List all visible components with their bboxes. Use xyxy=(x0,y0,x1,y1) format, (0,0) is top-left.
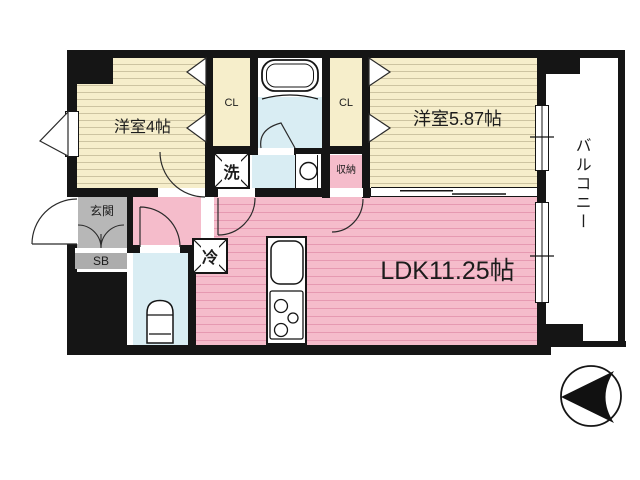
plan-annotations xyxy=(0,0,640,480)
shoe-cupboard-doors xyxy=(78,225,124,248)
toilet-fixture xyxy=(147,301,173,344)
floor-plan: 洗 冷 xyxy=(0,0,640,480)
bathtub-rim xyxy=(262,95,318,99)
balcony-label: バルコニー xyxy=(572,127,590,242)
stove-burner xyxy=(275,324,288,337)
bedroom2-label: 洋室5.87帖 xyxy=(385,110,530,130)
sliding-door-leaves xyxy=(400,191,506,194)
washbasin-bowl xyxy=(300,163,317,180)
entrance-label: 玄関 xyxy=(77,205,127,218)
storage-label: 収納 xyxy=(329,165,363,176)
kitchen-sink xyxy=(271,241,303,284)
ldk-label: LDK11.25帖 xyxy=(360,258,535,286)
bath-folding-door xyxy=(261,123,295,148)
bathtub xyxy=(262,60,318,91)
window-wedge xyxy=(40,112,68,156)
entrance-door-arc xyxy=(32,199,77,244)
closet1-door-wedge xyxy=(187,58,206,86)
stove-burner xyxy=(288,313,298,323)
bedroom1-door-arc xyxy=(160,152,205,197)
washroom-door-arc xyxy=(218,198,255,235)
toilet-door-arc xyxy=(140,207,180,247)
bedroom1-label: 洋室4帖 xyxy=(95,119,190,137)
closet2-label: CL xyxy=(330,97,362,109)
closet2-door-wedge xyxy=(369,58,390,86)
shoe-box-label: SB xyxy=(75,255,127,268)
storage-door-arc xyxy=(332,199,363,232)
closet1-label: CL xyxy=(213,97,250,109)
stove-burner xyxy=(275,300,288,313)
